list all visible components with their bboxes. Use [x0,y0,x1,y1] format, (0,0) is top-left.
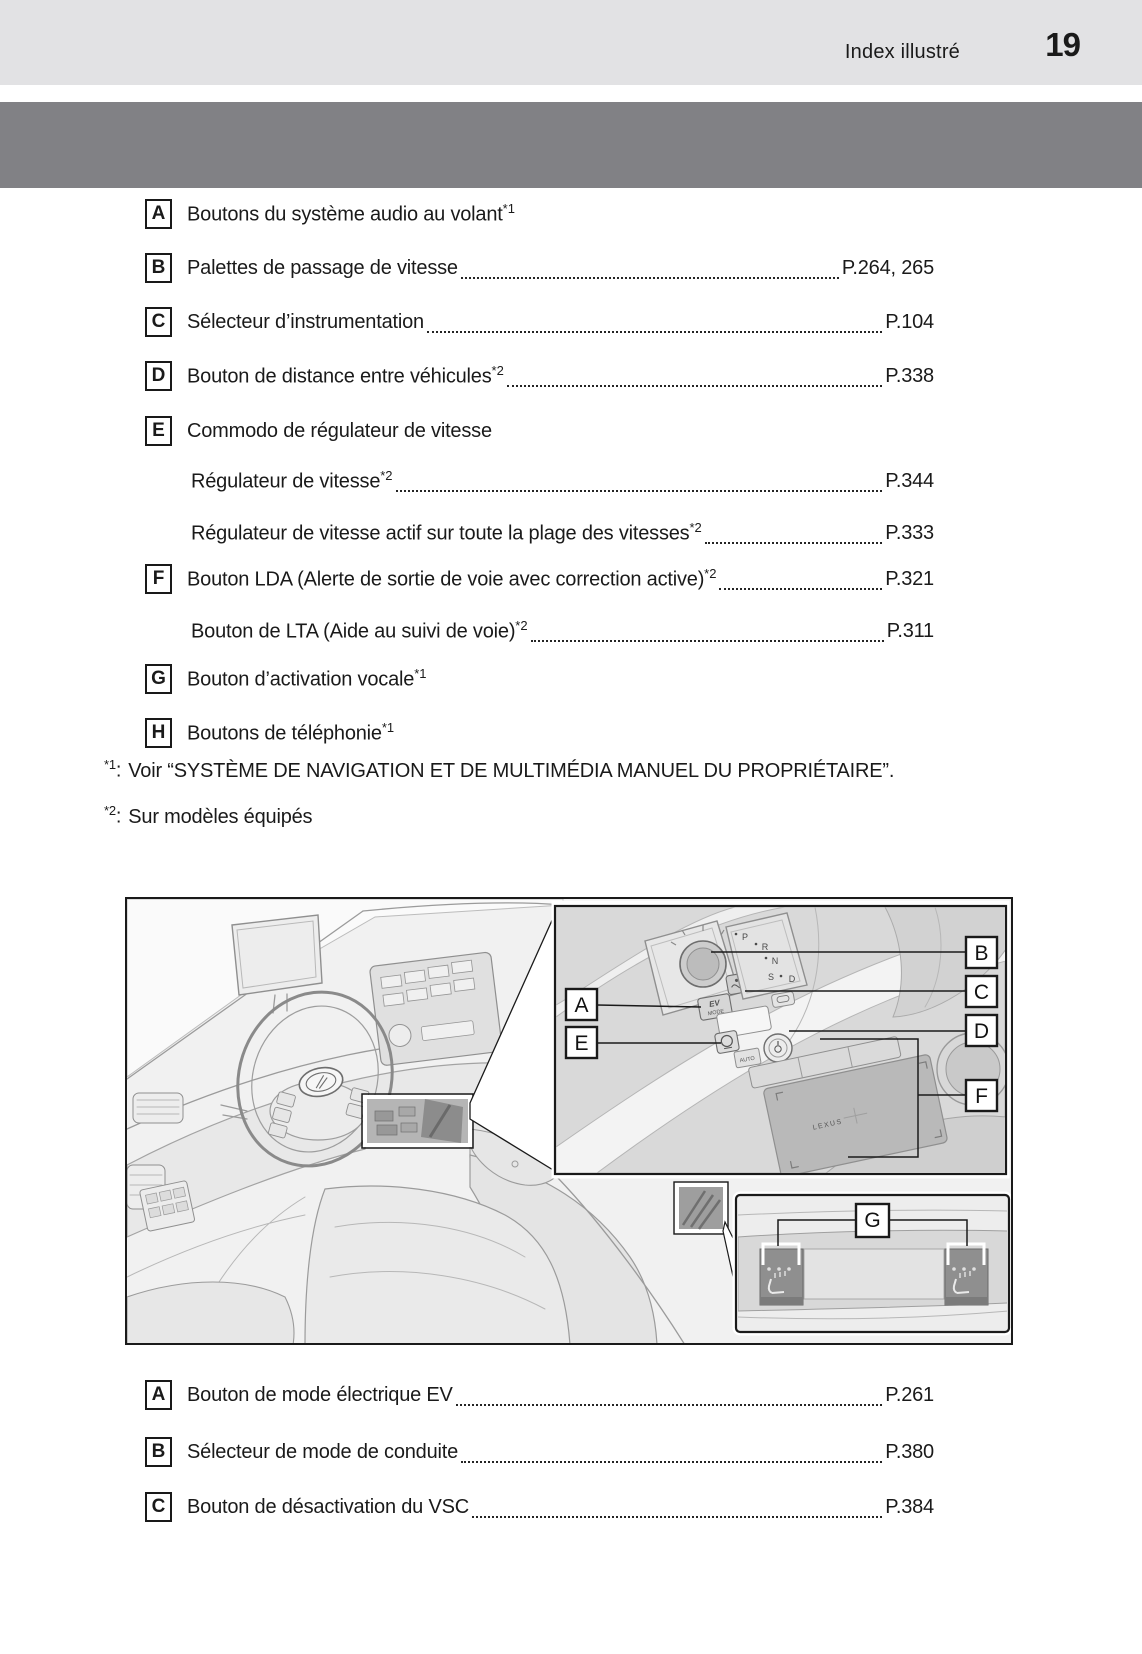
item-text: Boutons du système audio au volant*1 [187,201,515,227]
seat-heater-switch-right [945,1244,988,1305]
index-item-g: G Bouton d’activation vocale*1 [145,662,934,696]
page-ref: P.104 [885,311,934,334]
index-subitem-cruise: Régulateur de vitesse*2 P.344 [145,464,934,498]
page-number: 19 [1045,26,1080,64]
footnote-2: *2:Sur modèles équipés [104,803,312,829]
page-ref: P.344 [885,470,934,493]
index-subitem-full-range-cruise: Régulateur de vitesse actif sur toute la… [145,516,934,550]
side-vent-icon [133,1093,183,1123]
callout-letter-g: G [864,1209,880,1232]
bottom-item-c: C Bouton de désactivation du VSC P.384 [145,1490,934,1524]
dial-button [764,1034,792,1062]
item-letter: B [152,1441,166,1463]
callout-letter-c: C [974,981,989,1004]
dot-leader [705,542,883,544]
svg-text:S: S [768,972,774,982]
dot-leader [461,277,839,279]
item-text: Bouton de désactivation du VSC [187,1496,469,1519]
page-ref: P.261 [885,1384,934,1407]
chapter-band [0,102,1142,188]
manual-page: Index illustré 19 A Boutons du système a… [0,0,1142,1654]
footnote-marker: *1 [503,201,515,216]
item-letter: F [153,568,165,590]
item-letter-box: A [145,1380,172,1410]
footnote-marker: *1 [104,757,116,772]
footnote-marker: *1 [382,720,394,735]
item-text: Commodo de régulateur de vitesse [187,420,492,443]
item-letter: B [152,257,166,279]
seat-heater-switch-left [760,1244,803,1305]
index-item-c: C Sélecteur d’instrumentation P.104 [145,305,934,339]
dot-leader [531,640,884,642]
dot-leader [472,1516,882,1518]
item-text: Bouton d’activation vocale*1 [187,666,426,692]
callout-letter-f: F [975,1085,988,1108]
item-letter-box: B [145,1437,172,1467]
dot-leader [456,1404,883,1406]
bottom-item-a: A Bouton de mode électrique EV P.261 [145,1378,934,1412]
callout-letter-d: D [974,1020,989,1043]
camera-button [714,1030,739,1054]
page-ref: P.264, 265 [842,257,934,280]
item-text: Bouton de mode électrique EV [187,1384,453,1407]
item-text: Bouton de LTA (Aide au suivi de voie)*2 [191,618,528,644]
item-text: Régulateur de vitesse actif sur toute la… [191,520,702,546]
interior-illustration: EV MODE P R N S D [125,897,1013,1345]
item-letter: C [152,311,166,333]
page-ref: P.384 [885,1496,934,1519]
footnote-marker: *2 [492,363,504,378]
callout-letter-a: A [574,994,588,1017]
footnote-marker: *2 [515,618,527,633]
item-text: Bouton LDA (Alerte de sortie de voie ave… [187,566,716,592]
item-letter-box: F [145,564,172,594]
svg-text:D: D [789,974,796,984]
section-title: Index illustré [845,41,960,64]
item-text: Palettes de passage de vitesse [187,257,458,280]
item-letter-box: A [145,199,172,229]
page-ref: P.311 [887,620,934,643]
header-band: Index illustré 19 [0,0,1142,85]
item-letter: D [152,365,166,387]
index-item-b: B Palettes de passage de vitesse P.264, … [145,251,934,285]
index-item-f: F Bouton LDA (Alerte de sortie de voie a… [145,562,934,596]
footnote-text: Sur modèles équipés [128,806,312,828]
driver-seat [127,1282,294,1345]
index-item-e: E Commodo de régulateur de vitesse [145,414,934,448]
item-letter: A [152,1384,166,1406]
svg-text:P: P [742,932,748,942]
item-letter-box: B [145,253,172,283]
item-letter: A [152,203,166,225]
footnote-marker: *2 [689,520,701,535]
dot-leader [396,490,883,492]
svg-text:N: N [772,956,779,966]
index-item-a: A Boutons du système audio au volant*1 [145,197,934,231]
item-text: Régulateur de vitesse*2 [191,468,393,494]
footnote-marker: *2 [380,468,392,483]
item-letter-box: C [145,1492,172,1522]
item-text: Sélecteur de mode de conduite [187,1441,458,1464]
item-text: Sélecteur d’instrumentation [187,311,424,334]
page-ref: P.321 [885,568,934,591]
footnote-text: Voir “SYSTÈME DE NAVIGATION ET DE MULTIM… [128,760,894,782]
page-ref: P.380 [885,1441,934,1464]
index-item-h: H Boutons de téléphonie*1 [145,716,934,750]
footnote-marker: *2 [704,566,716,581]
item-text: Bouton de distance entre véhicules*2 [187,363,504,389]
item-letter: E [152,420,165,442]
bottom-item-b: B Sélecteur de mode de conduite P.380 [145,1435,934,1469]
item-letter: H [152,722,166,744]
dot-leader [427,331,882,333]
callout-letter-b: B [974,942,988,965]
item-letter: C [152,1496,166,1518]
item-letter-box: D [145,361,172,391]
item-letter: G [151,668,166,690]
item-letter-box: C [145,307,172,337]
footnote-marker: *1 [414,666,426,681]
dot-leader [719,588,882,590]
footnote-1: *1:Voir “SYSTÈME DE NAVIGATION ET DE MUL… [104,757,894,783]
item-letter-box: G [145,664,172,694]
dot-leader [507,385,882,387]
item-letter-box: E [145,416,172,446]
index-item-d: D Bouton de distance entre véhicules*2 P… [145,359,934,393]
dot-leader [461,1461,882,1463]
item-text: Boutons de téléphonie*1 [187,720,394,746]
footnote-marker: *2 [104,803,116,818]
page-ref: P.333 [885,522,934,545]
index-subitem-lta: Bouton de LTA (Aide au suivi de voie)*2 … [145,614,934,648]
page-ref: P.338 [885,365,934,388]
item-letter-box: H [145,718,172,748]
callout-letter-e: E [574,1032,588,1055]
svg-text:R: R [762,942,769,952]
